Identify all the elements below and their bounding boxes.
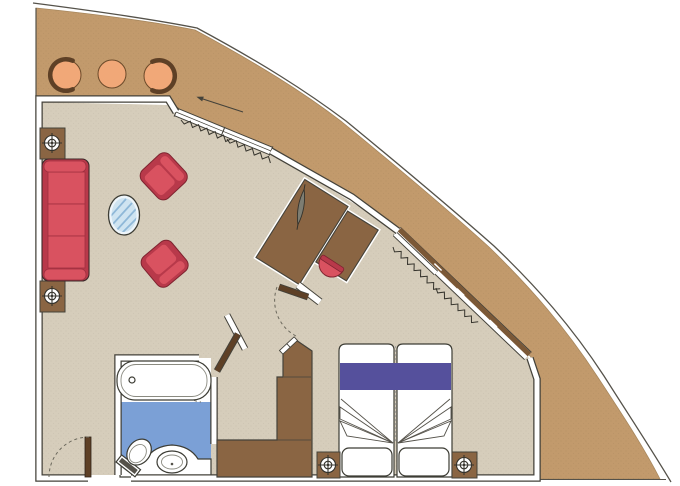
- sofa-armrest: [44, 161, 86, 172]
- pillow-right: [399, 448, 449, 476]
- sofa-cushions: [44, 161, 86, 280]
- balcony-table: [98, 60, 126, 88]
- balcony-furniture: [50, 59, 175, 92]
- sink: [157, 451, 187, 473]
- sofa-armrest: [44, 269, 86, 280]
- oval-glass-coffee-table: [109, 195, 140, 235]
- bathtub-drain: [129, 377, 135, 383]
- balcony-lounge-chair-left: [50, 59, 81, 91]
- balcony-lounge-chair-right: [144, 60, 175, 92]
- suite-floor-plan: [0, 0, 680, 486]
- pillow-left: [342, 448, 392, 476]
- sofa: [42, 159, 89, 281]
- bed-runner: [340, 363, 451, 390]
- door-leaf: [85, 437, 91, 477]
- floor-plan-page: [0, 0, 680, 486]
